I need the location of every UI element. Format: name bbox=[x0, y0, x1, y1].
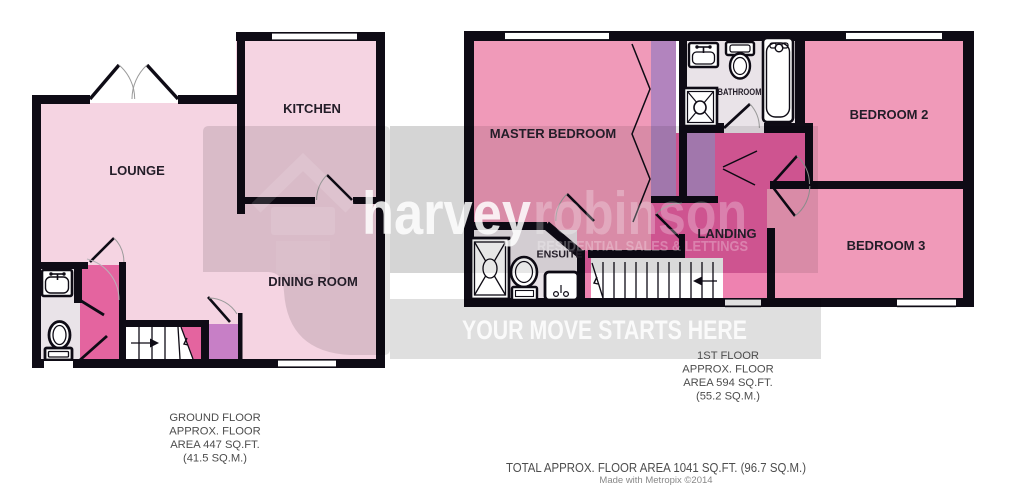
svg-text:harvey: harvey bbox=[362, 180, 532, 247]
svg-text:AREA 447 SQ.FT.: AREA 447 SQ.FT. bbox=[170, 439, 260, 451]
svg-text:BEDROOM 3: BEDROOM 3 bbox=[847, 238, 926, 253]
svg-text:ENSUITE: ENSUITE bbox=[537, 250, 583, 261]
svg-text:LANDING: LANDING bbox=[697, 226, 756, 241]
svg-text:TOTAL APPROX. FLOOR AREA 1041: TOTAL APPROX. FLOOR AREA 1041 SQ.FT. (96… bbox=[506, 461, 806, 475]
svg-text:BATHROOM: BATHROOM bbox=[718, 87, 762, 98]
svg-text:Made with Metropix ©2014: Made with Metropix ©2014 bbox=[599, 475, 712, 486]
svg-text:BEDROOM 2: BEDROOM 2 bbox=[850, 107, 929, 122]
svg-text:APPROX. FLOOR: APPROX. FLOOR bbox=[682, 364, 773, 376]
svg-text:(55.2 SQ.M.): (55.2 SQ.M.) bbox=[696, 391, 760, 403]
svg-text:AREA 594 SQ.FT.: AREA 594 SQ.FT. bbox=[683, 377, 773, 389]
svg-text:YOUR MOVE STARTS HERE: YOUR MOVE STARTS HERE bbox=[462, 315, 747, 345]
svg-text:GROUND FLOOR: GROUND FLOOR bbox=[169, 412, 260, 424]
svg-text:LOUNGE: LOUNGE bbox=[109, 163, 165, 178]
svg-text:1ST FLOOR: 1ST FLOOR bbox=[697, 350, 759, 362]
svg-text:APPROX. FLOOR: APPROX. FLOOR bbox=[169, 426, 260, 438]
svg-text:KITCHEN: KITCHEN bbox=[283, 101, 341, 116]
svg-text:MASTER BEDROOM: MASTER BEDROOM bbox=[490, 126, 616, 141]
svg-text:(41.5 SQ.M.): (41.5 SQ.M.) bbox=[183, 453, 247, 465]
svg-text:DINING ROOM: DINING ROOM bbox=[268, 274, 358, 289]
